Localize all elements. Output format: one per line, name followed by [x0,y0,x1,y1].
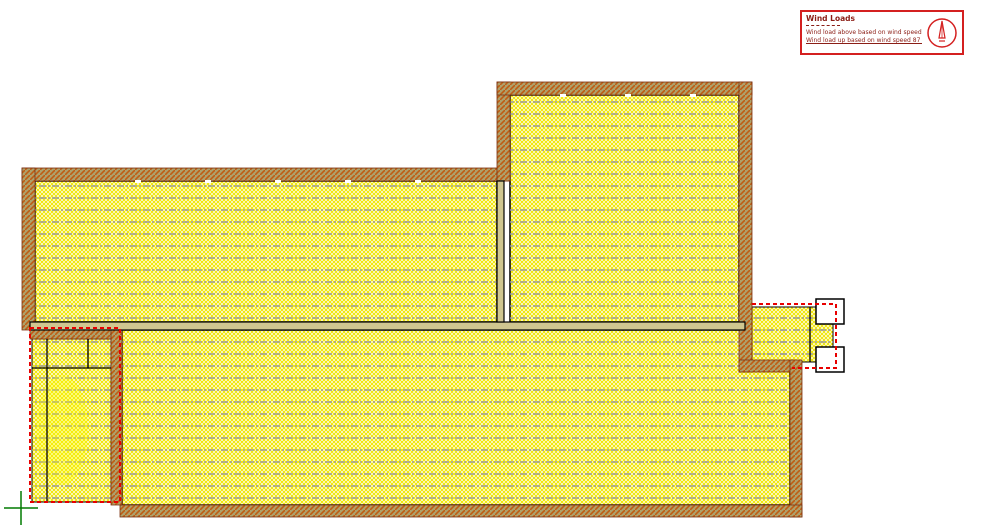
legend-divider-line [806,25,840,26]
middle-bearing-wall [30,322,745,330]
panel-mark [560,94,566,97]
panel-mark [345,180,351,183]
north-arrow-icon [924,14,960,52]
legend-title: Wind Loads [806,14,922,23]
wind-loads-legend: Wind Loads Wind load above based on wind… [800,10,964,55]
roof-areas [32,95,833,505]
wall-right-lower [790,360,802,517]
bump-out-corner-pad-top [816,299,844,324]
upper-right-joists [510,95,739,322]
wall-left [22,168,35,330]
legend-note-1: Wind load above based on wind speed 87 m… [806,29,922,37]
panel-mark [135,180,141,183]
lower-joists [122,330,790,505]
wall-bump-out-bottom [739,360,795,372]
panel-mark [625,94,631,97]
wall-step-vertical [497,82,510,181]
wall-top-right [497,82,752,95]
panel-mark [205,180,211,183]
floor-plan-drawing [0,0,982,528]
panel-mark [690,94,696,97]
wall-top-left [22,168,510,181]
upper-left-joists [35,181,497,322]
dense-hatch-highlight [36,375,88,485]
panel-mark [415,180,421,183]
north-arrow-wrap [922,12,962,53]
drawing-canvas: Wind Loads Wind load above based on wind… [0,0,982,528]
legend-note-2: Wind load up based on wind speed 87 m/s. [806,37,922,45]
wall-bottom [120,505,802,517]
legend-text-block: Wind Loads Wind load above based on wind… [802,12,922,53]
panel-mark [275,180,281,183]
divider-wall-vertical [497,181,504,322]
